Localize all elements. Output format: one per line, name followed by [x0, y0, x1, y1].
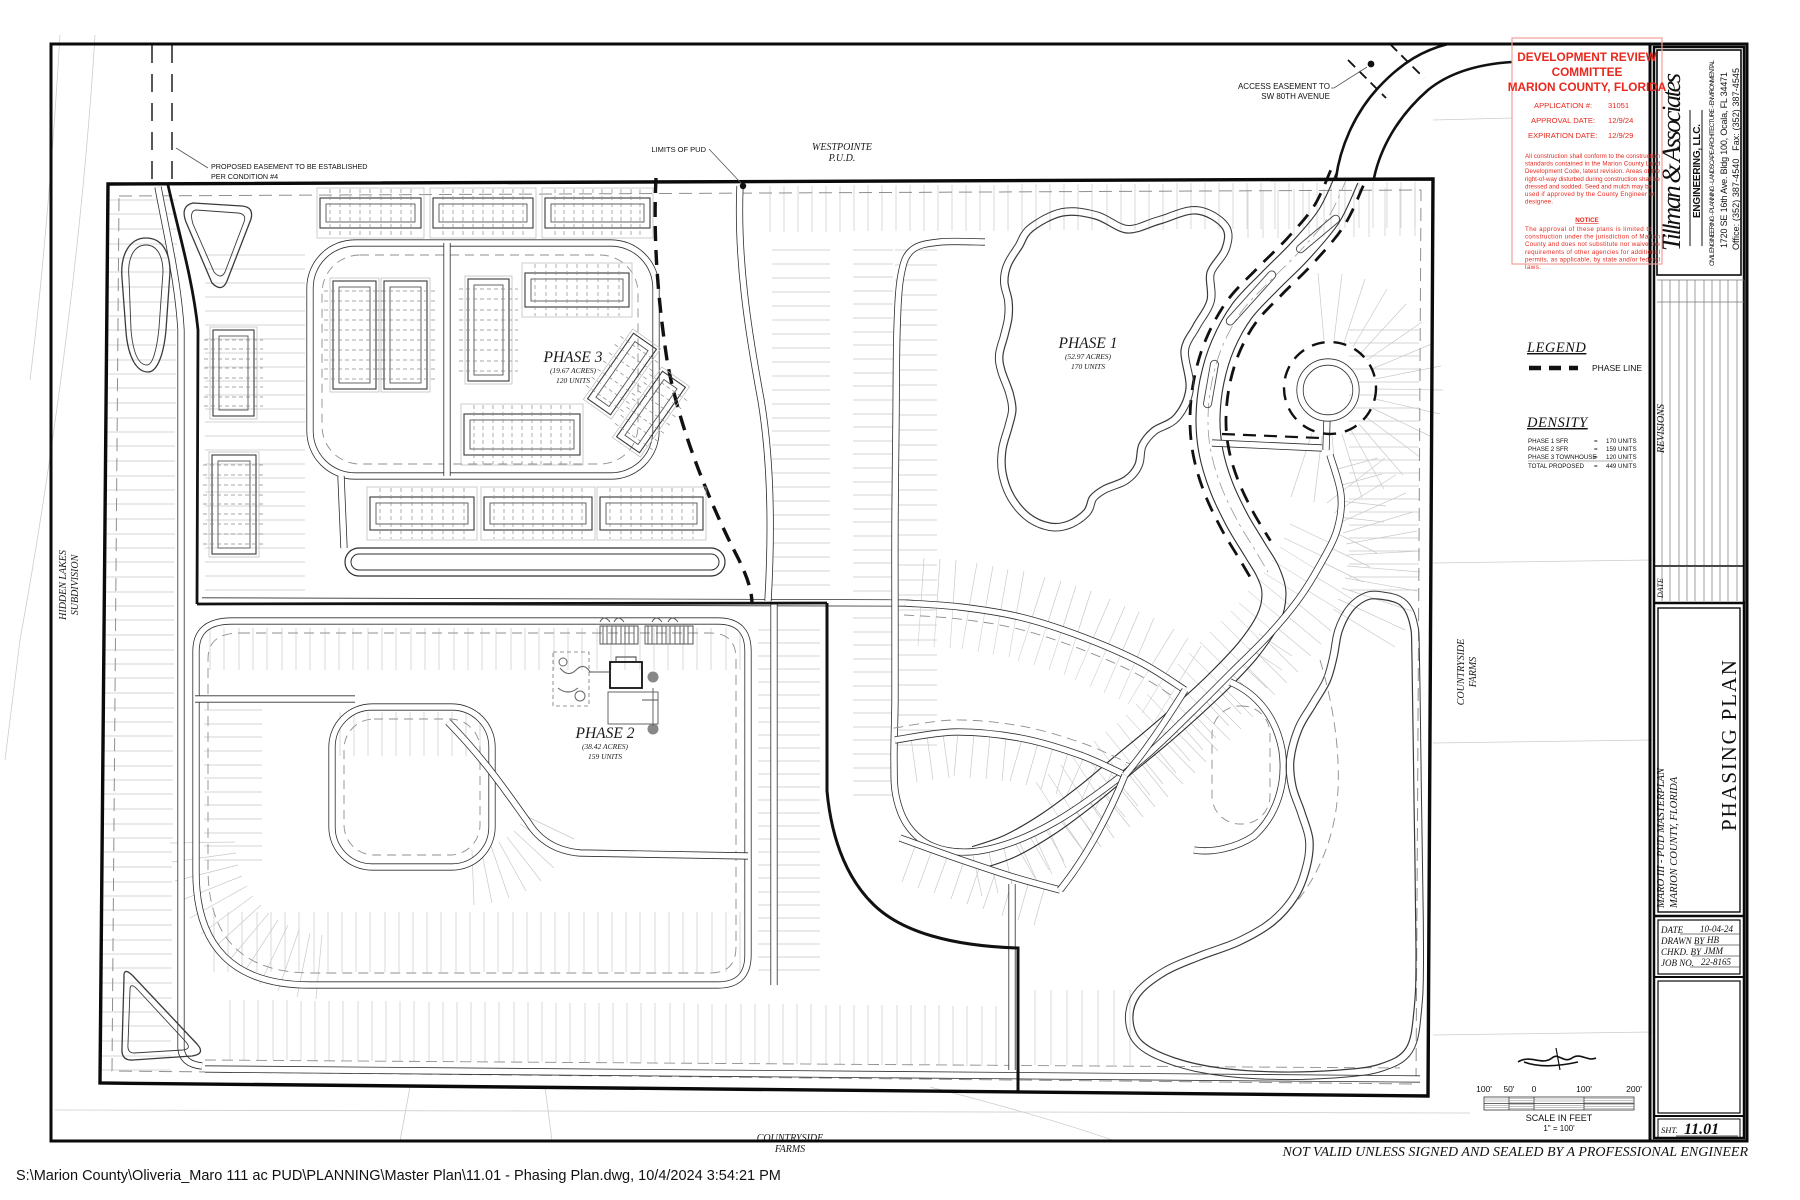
svg-text:=: = [1594, 446, 1598, 453]
svg-text:ENGINEERING, LLC.: ENGINEERING, LLC. [1692, 124, 1703, 218]
svg-text:22-8165: 22-8165 [1701, 957, 1731, 967]
svg-text:Development Code, latest revis: Development Code, latest revision. Areas… [1525, 168, 1661, 175]
svg-text:REVISIONS: REVISIONS [1656, 404, 1667, 454]
svg-text:PHASE 3 TOWNHOUSE: PHASE 3 TOWNHOUSE [1528, 454, 1597, 461]
svg-text:SW 80TH AVENUE: SW 80TH AVENUE [1261, 92, 1330, 101]
svg-text:11.01: 11.01 [1684, 1121, 1719, 1138]
svg-text:DENSITY: DENSITY [1526, 415, 1589, 431]
svg-text:DRAWN BY: DRAWN BY [1660, 936, 1705, 946]
svg-text:=: = [1594, 454, 1598, 461]
svg-text:LEGEND: LEGEND [1526, 340, 1586, 356]
svg-text:120 UNITS: 120 UNITS [556, 376, 590, 385]
svg-text:P.U.D.: P.U.D. [828, 153, 856, 164]
svg-text:NOTICE: NOTICE [1575, 217, 1598, 224]
svg-text:used if approved by the County: used if approved by the County Engineer … [1525, 191, 1655, 198]
svg-text:MARO III - PUD MASTERPLAN: MARO III - PUD MASTERPLAN [1656, 767, 1667, 909]
svg-text:PHASING PLAN: PHASING PLAN [1717, 658, 1741, 831]
svg-text:FARMS: FARMS [1468, 657, 1479, 688]
svg-text:right-of-way disturbed during: right-of-way disturbed during constructi… [1525, 176, 1661, 183]
svg-text:MARION COUNTY, FLORIDA: MARION COUNTY, FLORIDA [1669, 776, 1680, 909]
svg-text:=: = [1594, 463, 1598, 470]
svg-text:WESTPOINTE: WESTPOINTE [812, 142, 872, 153]
svg-text:DEVELOPMENT REVIEW: DEVELOPMENT REVIEW [1517, 50, 1657, 64]
svg-text:120 UNITS: 120 UNITS [1606, 454, 1637, 461]
svg-text:permits, as applicable, by sta: permits, as applicable, by state and/or … [1525, 256, 1660, 263]
svg-text:APPROVAL DATE:: APPROVAL DATE: [1531, 116, 1595, 125]
svg-text:DATE: DATE [1656, 578, 1665, 599]
svg-text:designee.: designee. [1525, 199, 1553, 206]
svg-text:159 UNITS: 159 UNITS [588, 752, 622, 761]
svg-text:=: = [1594, 438, 1598, 445]
svg-text:PHASE 2: PHASE 2 [575, 725, 635, 742]
svg-text:200': 200' [1626, 1084, 1642, 1094]
svg-text:12/9/24: 12/9/24 [1608, 116, 1633, 125]
svg-text:County and does not substitute: County and does not substitute nor waive… [1525, 241, 1661, 248]
svg-text:PHASE 2 SFR: PHASE 2 SFR [1528, 446, 1569, 453]
svg-text:DATE: DATE [1660, 925, 1684, 935]
svg-text:ACCESS EASEMENT TO: ACCESS EASEMENT TO [1238, 82, 1330, 91]
svg-text:S:\Marion County\Oliveria_Maro: S:\Marion County\Oliveria_Maro 111 ac PU… [16, 1168, 781, 1184]
svg-text:JOB NO.: JOB NO. [1661, 958, 1694, 968]
svg-text:PHASE LINE: PHASE LINE [1592, 363, 1642, 373]
svg-text:dressed and sodded. Seed and m: dressed and sodded. Seed and mulch may b… [1525, 183, 1653, 190]
svg-text:COMMITTEE: COMMITTEE [1552, 65, 1623, 79]
svg-text:10-04-24: 10-04-24 [1700, 924, 1733, 934]
svg-text:All construction shall conform: All construction shall conform to the co… [1525, 153, 1661, 160]
svg-text:SUBDIVISION: SUBDIVISION [70, 553, 81, 615]
svg-text:LIMITS OF PUD: LIMITS OF PUD [651, 145, 706, 154]
svg-text:standards contained in the Mar: standards contained in the Marion County… [1525, 161, 1661, 168]
svg-text:Office: (352) 387-4540 Fax:: Office: (352) 387-4540 Fax: (352) 387-45… [1731, 68, 1741, 250]
svg-text:1" = 100': 1" = 100' [1543, 1124, 1575, 1133]
svg-text:SHT.: SHT. [1661, 1125, 1678, 1135]
svg-text:PER CONDITION #4: PER CONDITION #4 [211, 172, 278, 181]
svg-text:100': 100' [1576, 1084, 1592, 1094]
svg-text:0: 0 [1532, 1084, 1537, 1094]
svg-text:APPLICATION #:: APPLICATION #: [1534, 101, 1592, 110]
svg-text:159 UNITS: 159 UNITS [1606, 446, 1637, 453]
svg-text:(52.97 ACRES): (52.97 ACRES) [1065, 352, 1112, 361]
svg-text:JMM: JMM [1704, 946, 1723, 956]
svg-text:31051: 31051 [1608, 101, 1629, 110]
svg-text:SCALE IN FEET: SCALE IN FEET [1526, 1113, 1593, 1123]
svg-text:CHKD. BY: CHKD. BY [1661, 947, 1702, 957]
svg-text:12/9/29: 12/9/29 [1608, 131, 1633, 140]
svg-text:PHASE 3: PHASE 3 [543, 349, 603, 366]
svg-text:170 UNITS: 170 UNITS [1071, 362, 1105, 371]
svg-text:(38.42 ACRES): (38.42 ACRES) [582, 742, 629, 751]
svg-text:100': 100' [1476, 1084, 1492, 1094]
svg-text:TOTAL PROPOSED: TOTAL PROPOSED [1528, 463, 1584, 470]
svg-text:HIDDEN LAKES: HIDDEN LAKES [58, 550, 69, 621]
svg-text:1720 SE 16th Ave. Bldg 100, Oc: 1720 SE 16th Ave. Bldg 100, Ocala, FL 34… [1719, 72, 1729, 248]
svg-text:requirements of other agencies: requirements of other agencies for addit… [1525, 249, 1660, 256]
svg-text:EXPIRATION DATE:: EXPIRATION DATE: [1528, 131, 1597, 140]
svg-text:laws.: laws. [1525, 264, 1541, 271]
svg-text:MARION COUNTY, FLORIDA: MARION COUNTY, FLORIDA [1508, 80, 1667, 94]
svg-text:PROPOSED EASEMENT TO BE ESTABL: PROPOSED EASEMENT TO BE ESTABLISHED [211, 162, 367, 171]
svg-text:HB: HB [1706, 935, 1719, 945]
svg-text:Tillman & Associates: Tillman & Associates [1657, 73, 1686, 251]
svg-text:50': 50' [1503, 1084, 1514, 1094]
svg-text:(19.67 ACRES): (19.67 ACRES) [550, 366, 597, 375]
svg-text:PHASE 1: PHASE 1 [1058, 335, 1118, 352]
svg-text:PHASE 1 SFR: PHASE 1 SFR [1528, 438, 1569, 445]
svg-text:170 UNITS: 170 UNITS [1606, 438, 1637, 445]
svg-text:FARMS: FARMS [774, 1144, 805, 1155]
svg-text:NOT VALID UNLESS SIGNED AND SE: NOT VALID UNLESS SIGNED AND SEALED BY A … [1281, 1145, 1748, 1160]
svg-text:construction under the jurisdi: construction under the jurisdiction of M… [1525, 234, 1661, 241]
svg-text:The approval of these plans is: The approval of these plans is limited t… [1525, 226, 1653, 233]
svg-text:COUNTRYSIDE: COUNTRYSIDE [1456, 639, 1467, 706]
svg-text:449 UNITS: 449 UNITS [1606, 463, 1637, 470]
svg-text:CIVIL ENGINEERING - PLANNING -: CIVIL ENGINEERING - PLANNING - LANDSCAPE… [1709, 60, 1716, 266]
